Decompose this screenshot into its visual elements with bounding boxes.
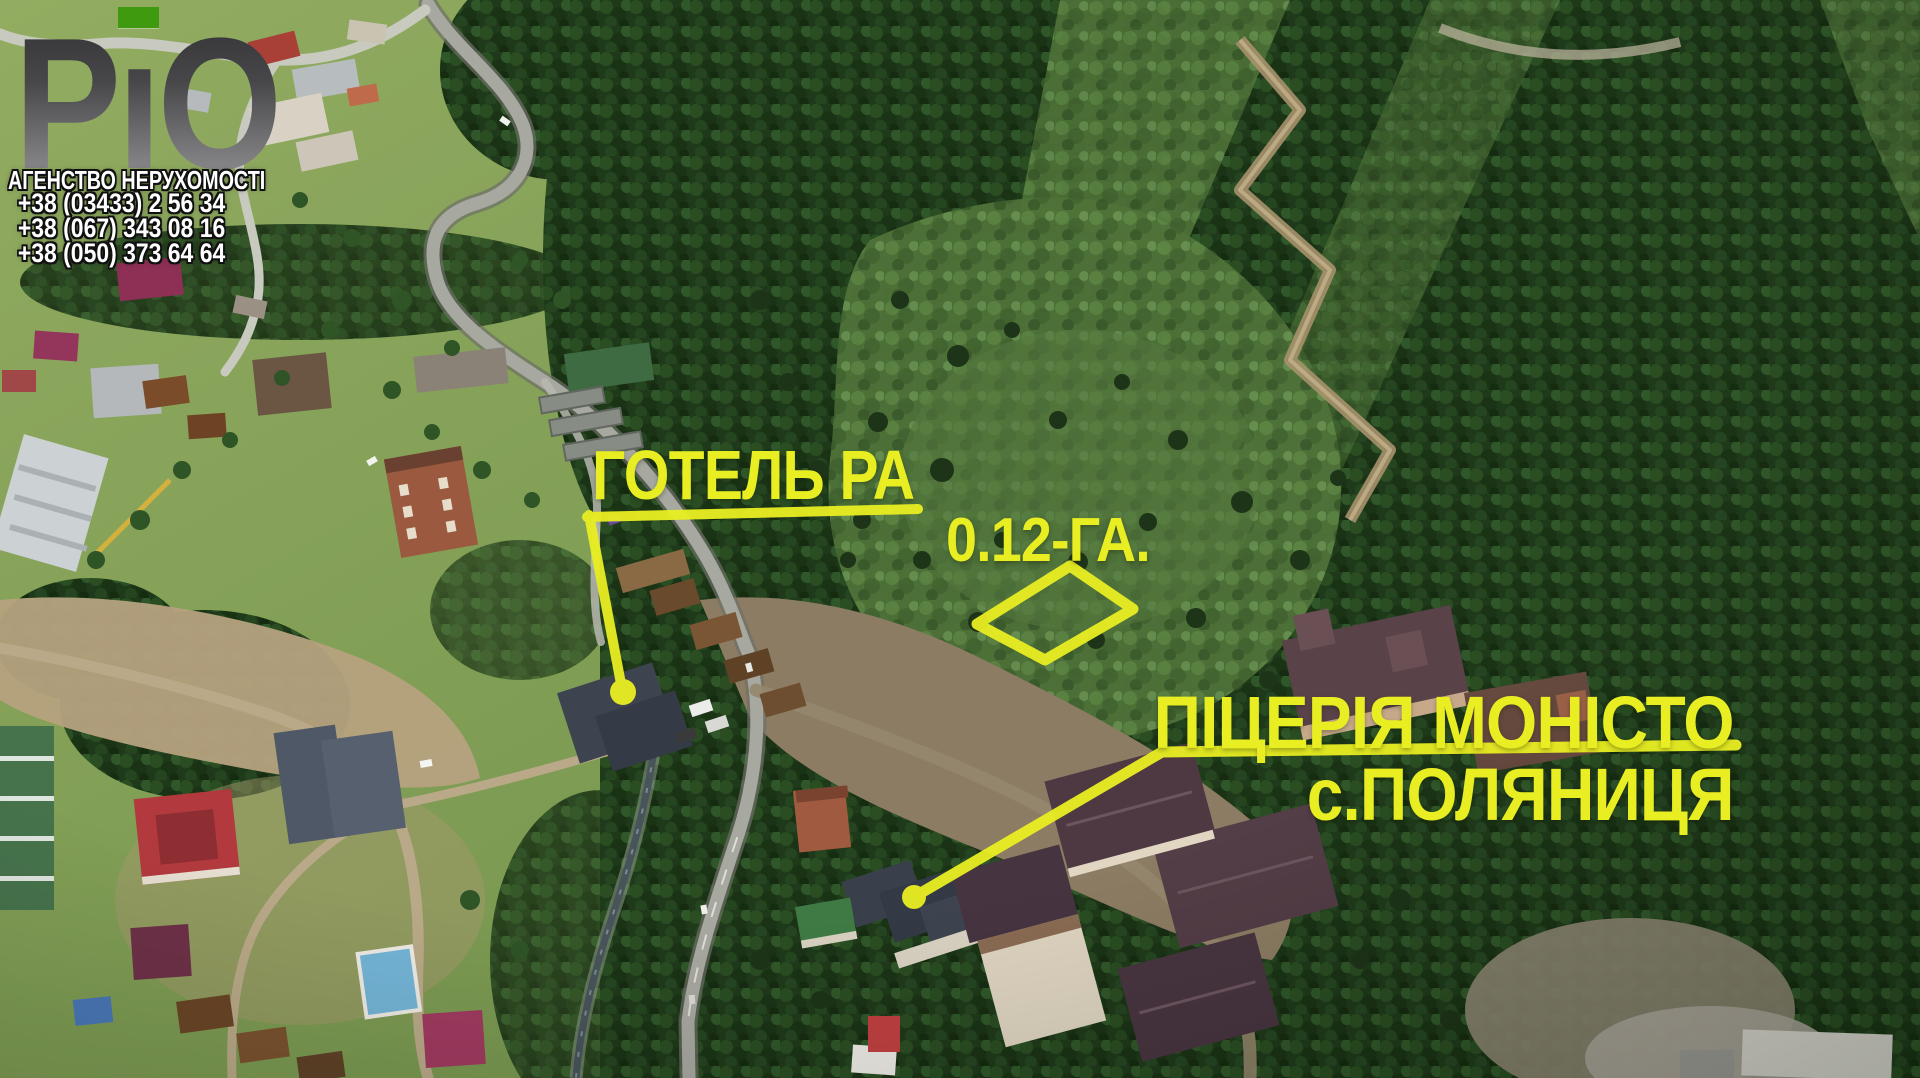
village-label: с.ПОЛЯНИЦЯ bbox=[1307, 758, 1734, 832]
hotel-ra-label: ГОТЕЛЬ РА bbox=[592, 440, 914, 510]
agency-phones: +38 (03433) 2 56 34 +38 (067) 343 08 16 … bbox=[0, 191, 243, 266]
phone-number-3: +38 (050) 373 64 64 bbox=[0, 241, 243, 266]
plot-area-label: 0.12-ГА. bbox=[946, 510, 1150, 572]
pizzeria-label: ПІЦЕРІЯ МОНІСТО bbox=[1154, 686, 1734, 760]
logo-green-rectangle bbox=[118, 7, 159, 28]
hotel-pointer-dot bbox=[610, 679, 636, 705]
annotated-aerial-photo: РıО АГЕНСТВО НЕРУХОМОСТІ +38 (03433) 2 5… bbox=[0, 0, 1920, 1078]
pizzeria-pointer-dot bbox=[902, 885, 926, 909]
